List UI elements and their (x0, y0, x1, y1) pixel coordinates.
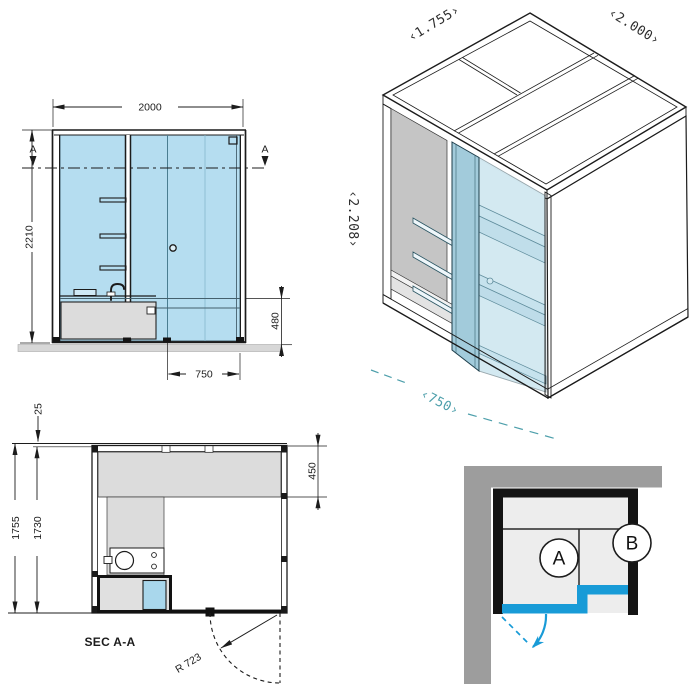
dim-roof-overhang: 25 (33, 403, 45, 415)
elevation-view: 2000 2210 A A 480 750 (18, 99, 292, 381)
section-arrow-left (30, 156, 37, 166)
section-arrow-right (262, 156, 269, 166)
sink (74, 290, 96, 296)
iso-depth-label: ‹1.755› (406, 3, 463, 46)
context-wall-top (464, 466, 662, 488)
drawing-svg: 2000 2210 A A 480 750 (0, 0, 700, 700)
plan-title: SEC A-A (85, 635, 136, 649)
floor-strip (18, 345, 281, 352)
burner-icon (116, 552, 134, 570)
cabinet (61, 302, 156, 339)
technical-drawing-sheet: 2000 2210 A A 480 750 (0, 0, 700, 700)
plan-view: R 723 25 1755 1730 450 SEC A-A (8, 403, 327, 683)
context-swing-arrow (533, 614, 546, 647)
context-diagram: A B (464, 466, 662, 684)
shower-tray (143, 581, 166, 610)
dim-sill-height: 480 (270, 312, 282, 330)
iso-width-label: ‹2.000› (605, 6, 662, 49)
door-handle (170, 245, 176, 251)
dim-outer-depth: 1755 (10, 516, 22, 540)
iso-height-label: ‹2.208› (345, 190, 360, 248)
door-swing-arc (210, 613, 280, 683)
iso-door-label: ‹750› (418, 387, 461, 419)
dim-height: 2210 (24, 225, 36, 249)
front-glass (479, 158, 546, 393)
bench-plan (98, 452, 281, 497)
dim-inner-depth: 1730 (32, 516, 44, 540)
dim-door-width: 750 (195, 369, 213, 381)
side-wall (547, 116, 688, 398)
isometric-view: ‹1.755› ‹2.000› ‹2.208› ‹750› (345, 3, 688, 440)
context-door-open (502, 617, 529, 644)
dim-swing-radius: R 723 (173, 651, 203, 676)
dim-width: 2000 (138, 102, 162, 114)
section-marker-right: A (261, 144, 268, 156)
context-wall-left (464, 466, 491, 684)
dim-bench-depth: 450 (307, 462, 319, 480)
glass-door-a (502, 604, 588, 614)
section-marker-left: A (29, 144, 36, 156)
zone-b-label: B (626, 534, 639, 555)
zone-a-label: A (553, 549, 566, 570)
